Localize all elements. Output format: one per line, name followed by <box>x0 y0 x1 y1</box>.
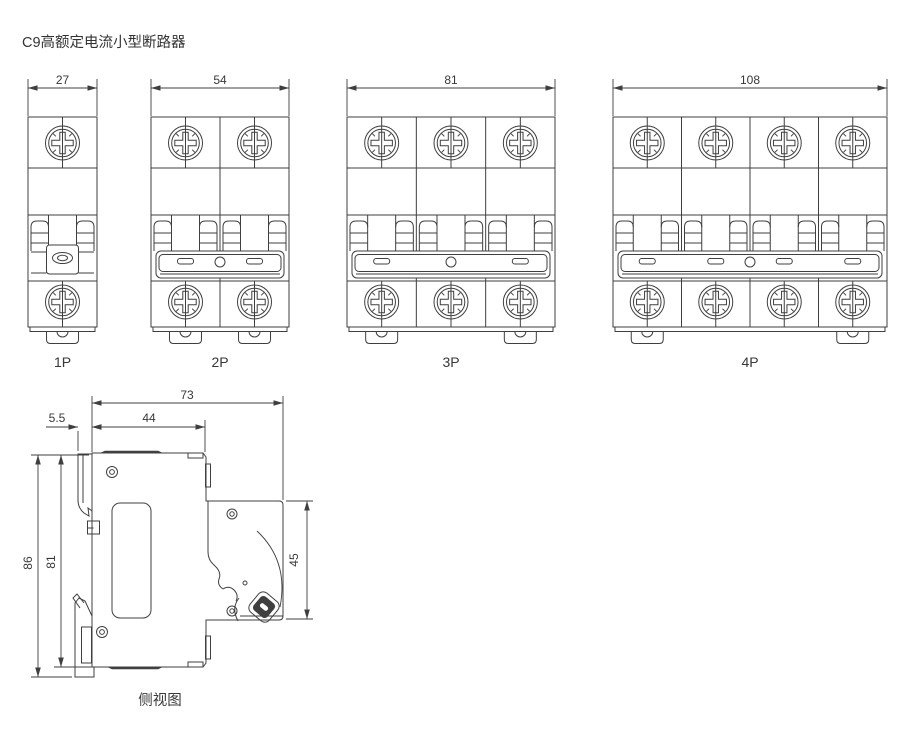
breaker-front-view-1p: 271P <box>28 73 97 370</box>
dim-total-height: 86 <box>21 556 35 570</box>
dim-body-height: 81 <box>44 555 58 569</box>
bottom-band <box>615 327 885 332</box>
view-label: 2P <box>211 354 228 370</box>
foot-notch <box>180 332 191 338</box>
dim-upper-depth: 44 <box>142 411 156 425</box>
dimension-value: 81 <box>444 73 458 87</box>
bottom-strip <box>107 667 163 669</box>
side-view-caption: 侧视图 <box>138 692 182 709</box>
breaker-front-view-4p: 1084P <box>613 73 887 370</box>
foot-notch <box>642 332 653 338</box>
bottom-band <box>349 327 553 332</box>
dim-clip-offset: 5.5 <box>49 411 66 425</box>
breaker-front-view-3p: 813P <box>347 73 555 370</box>
foot-notch <box>515 332 526 338</box>
dimension-value: 108 <box>740 73 760 87</box>
top-strip <box>100 451 163 453</box>
bottom-band <box>153 327 287 332</box>
drawing-canvas: 271P542P813P1084P 73 44 5.5 86 81 <box>0 0 900 750</box>
technical-drawing-page: C9高额定电流小型断路器 271P542P813P1084P 73 44 5.5 <box>0 0 900 750</box>
din-clip-lower <box>75 598 92 667</box>
dim-front-height: 45 <box>287 553 301 567</box>
clip-spring-slot <box>82 627 92 663</box>
front-views: 271P542P813P1084P <box>28 73 887 370</box>
foot-notch <box>249 332 260 338</box>
view-label: 1P <box>54 354 71 370</box>
view-label: 4P <box>741 354 758 370</box>
foot-notch <box>847 332 858 338</box>
din-foot-tab <box>47 332 79 344</box>
side-body-outline <box>92 453 283 667</box>
dim-total-depth: 73 <box>180 388 194 402</box>
dimension-value: 27 <box>56 73 70 87</box>
toggle-handle <box>47 245 79 274</box>
side-view: 73 44 5.5 86 81 45 <box>21 388 313 709</box>
dimension-value: 54 <box>213 73 227 87</box>
bottom-band <box>30 327 95 332</box>
breaker-front-view-2p: 542P <box>151 73 289 370</box>
foot-notch <box>57 332 68 338</box>
din-clip-upper <box>78 454 92 516</box>
view-label: 3P <box>442 354 459 370</box>
clip-foot <box>75 667 94 677</box>
foot-notch <box>376 332 387 338</box>
